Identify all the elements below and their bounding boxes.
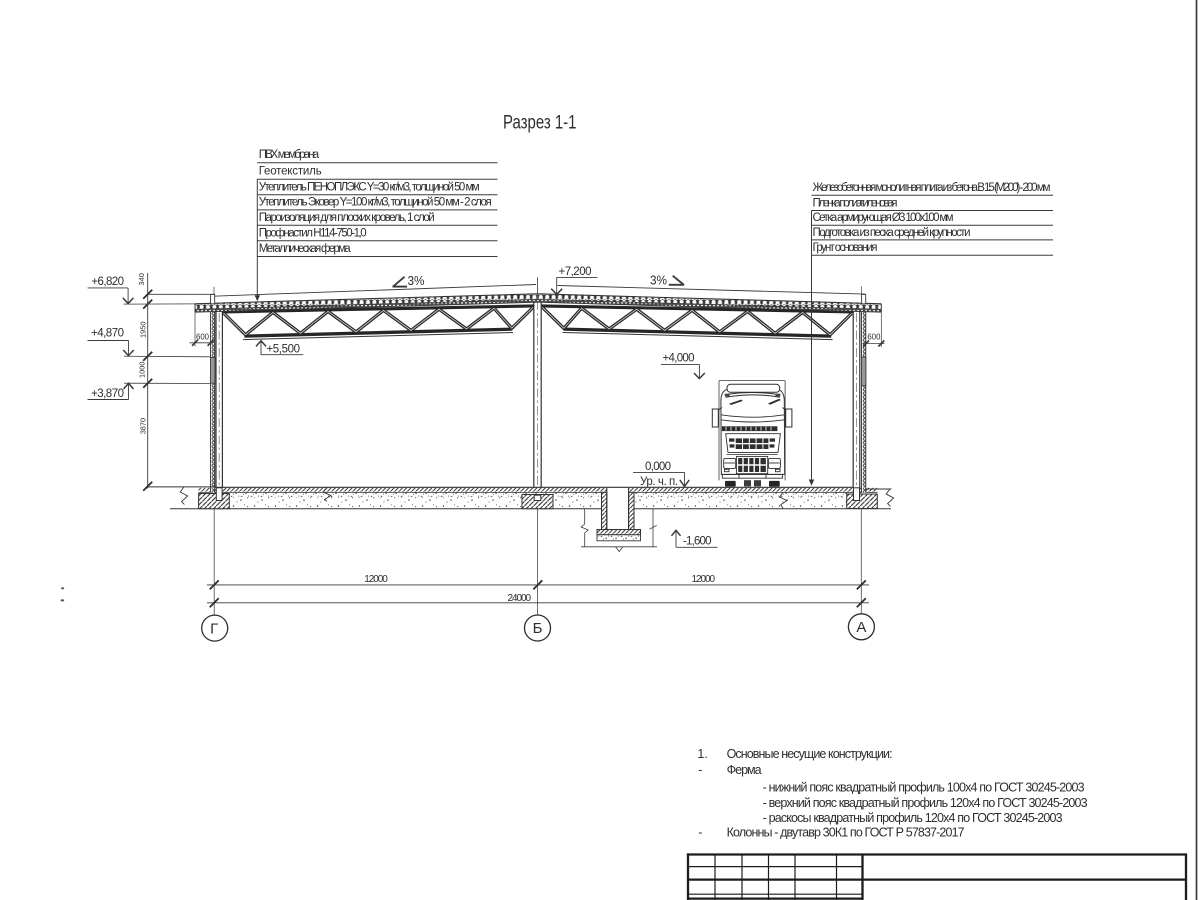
svg-text:3%: 3% [650,273,667,288]
svg-text:Железобетонная монолитная плит: Железобетонная монолитная плита из бетон… [813,182,1051,194]
svg-text:- нижний пояс квадратный профи: - нижний пояс квадратный профиль 100х4 п… [763,781,1085,795]
svg-text:+4,870: +4,870 [91,328,124,340]
svg-text:Профнастил Н114-750-1,0: Профнастил Н114-750-1,0 [259,228,367,240]
svg-text:12000: 12000 [692,574,716,585]
svg-text:340: 340 [137,273,146,285]
svg-text:+7,200: +7,200 [559,266,592,278]
svg-text:-: - [698,826,702,840]
svg-text:+4,000: +4,000 [663,353,695,365]
svg-text:Ур. ч. п.: Ур. ч. п. [640,476,678,488]
svg-text:- верхний пояс квадратный проф: - верхний пояс квадратный профиль 120х4 … [763,796,1088,810]
svg-text:Металлическая ферма: Металлическая ферма [259,243,352,255]
svg-text:Подготовка из песка средней кр: Подготовка из песка средней крупности [813,227,971,239]
svg-text:Утеплитель ПЕНОПЛЭКС Y=30 кг/м: Утеплитель ПЕНОПЛЭКС Y=30 кг/м3, толщино… [259,181,480,193]
svg-text:+6,820: +6,820 [91,276,124,288]
svg-text:Разрез 1-1: Разрез 1-1 [503,113,577,134]
svg-text:24000: 24000 [508,593,532,604]
svg-text:Б: Б [533,620,543,637]
svg-text:А: А [856,619,866,636]
svg-text:Основные несущие конструкции:: Основные несущие конструкции: [727,747,893,761]
svg-text:Ферма: Ферма [727,763,762,777]
svg-text:-: - [698,763,702,777]
svg-text:0,000: 0,000 [645,461,671,473]
svg-text:1950: 1950 [138,322,147,338]
svg-text:Колонны - двутавр 30К1 по ГОСТ: Колонны - двутавр 30К1 по ГОСТ Р 57837-2… [727,826,965,840]
svg-text:- раскосы квадратный профиль 1: - раскосы квадратный профиль 120х4 по ГО… [763,811,1063,825]
svg-text:3%: 3% [408,273,425,288]
svg-text:+5,500: +5,500 [267,343,301,355]
svg-text:600: 600 [196,333,210,342]
svg-text:Грунт основания: Грунт основания [813,242,878,254]
svg-text:3870: 3870 [139,418,148,434]
svg-text:Пароизоляция для плоских крове: Пароизоляция для плоских кровель, 1 слой [259,212,435,224]
svg-text:600: 600 [867,333,881,342]
svg-text:Утеплитель Эковер Y=100 кг/м3,: Утеплитель Эковер Y=100 кг/м3, толщиной … [259,197,492,209]
svg-text:-1,600: -1,600 [683,535,712,547]
svg-text:Геотекстиль: Геотекстиль [259,166,322,178]
svg-text:Сетка армирующая Ø3 100х100 мм: Сетка армирующая Ø3 100х100 мм [813,212,954,224]
svg-text:12000: 12000 [364,574,388,585]
svg-text:Г: Г [210,620,218,637]
svg-text:1.: 1. [697,747,707,761]
svg-text:ПВХ мембрана: ПВХ мембрана [259,149,320,161]
svg-text:1000: 1000 [138,362,147,378]
svg-text:Пленка полиэтиленовая: Пленка полиэтиленовая [813,197,898,209]
svg-text:+3,870: +3,870 [91,388,124,400]
